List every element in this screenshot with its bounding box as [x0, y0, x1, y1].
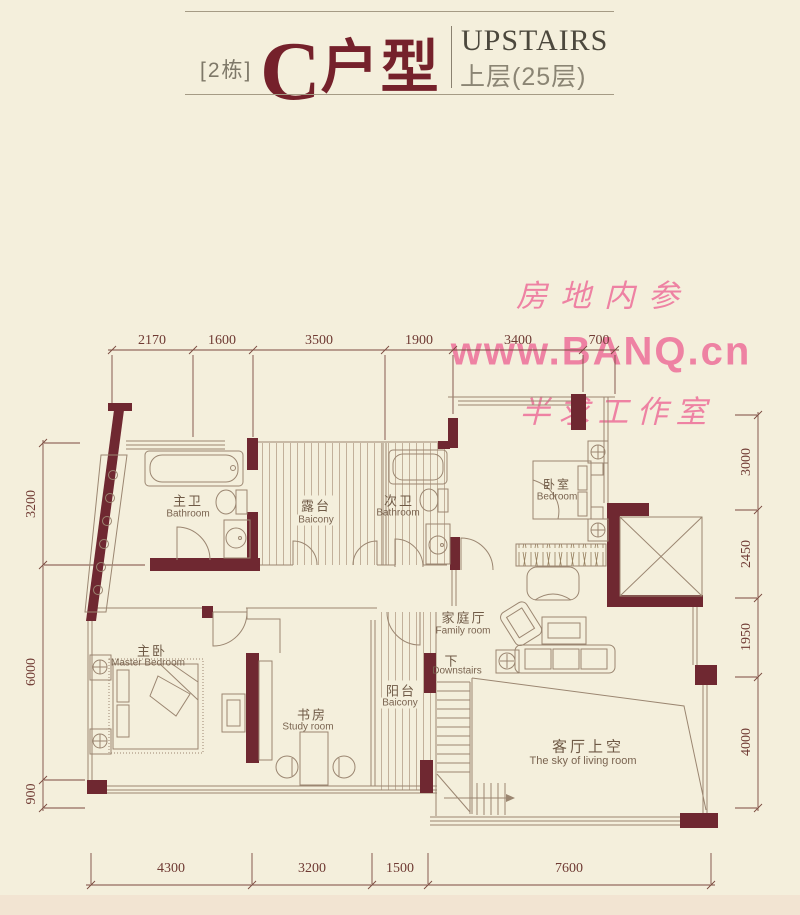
bedroom-door	[461, 538, 493, 570]
room-label-bedroom-zh: 卧室	[543, 476, 571, 493]
study-chair	[333, 756, 355, 778]
room-label-master-bath-zh: 主卫	[173, 491, 203, 510]
dim-bottom-1: 3200	[298, 861, 326, 877]
dim-right-1: 2450	[739, 540, 755, 568]
room-label-living-void-zh: 客厅上空	[552, 736, 624, 757]
room-label-living-void-en: The sky of living room	[530, 755, 637, 767]
elevator-shaft	[620, 517, 702, 596]
dim-left-1: 6000	[24, 658, 40, 686]
room-label-master-bedroom-en: Master Bedroom	[111, 658, 185, 669]
room-label-family-room-en: Family room	[435, 626, 490, 637]
study-chair	[276, 756, 298, 778]
floorplan-drawing	[0, 0, 800, 915]
room-label-second-bath-en: Bathroom	[376, 508, 419, 519]
master-bath-door	[177, 527, 210, 560]
dim-top-5: 700	[589, 333, 610, 349]
room-label-bedroom-en: Bedroom	[537, 492, 578, 503]
slanted-exterior-wall	[86, 410, 124, 621]
room-label-stairs-en: Downstairs	[432, 666, 481, 677]
tv-feature-wall	[246, 653, 259, 763]
dim-top-1: 1600	[208, 333, 236, 349]
dim-right-2: 1950	[739, 623, 755, 651]
floorplan-page: [2栋] C户型 UPSTAIRS 上层(25层) 房地内参 www.BANQ.…	[0, 0, 800, 915]
family-armchair	[498, 600, 544, 648]
room-label-master-bath-en: Bathroom	[166, 509, 209, 520]
master-bedroom-door	[213, 612, 247, 646]
dim-bottom-3: 7600	[555, 861, 583, 877]
stairs-direction-arrow	[506, 794, 515, 802]
master-bath-tub	[145, 451, 243, 486]
room-label-balcony-en: Baicony	[380, 698, 420, 709]
dim-bottom-0: 4300	[157, 861, 185, 877]
dim-right-3: 4000	[739, 728, 755, 756]
family-coffee-table	[542, 617, 586, 644]
room-label-terrace-zh: 露台	[299, 496, 333, 515]
room-label-family-room-zh: 家庭厅	[441, 608, 486, 627]
dim-bottom-2: 1500	[386, 861, 414, 877]
dim-top-4: 3400	[504, 333, 532, 349]
dim-left-2: 900	[24, 784, 40, 805]
room-label-study-en: Study room	[282, 722, 333, 733]
terrace-deck-hatch	[258, 443, 447, 565]
dim-top-3: 1900	[405, 333, 433, 349]
bedroom-wardrobe	[516, 544, 606, 566]
bedroom-armchair	[527, 567, 579, 600]
bottom-tint-strip	[0, 895, 800, 915]
study-desk	[300, 732, 328, 785]
master-bed	[113, 664, 198, 749]
study-bookshelf	[259, 661, 272, 760]
dim-top-0: 2170	[138, 333, 166, 349]
master-bed-rug	[109, 659, 203, 753]
master-bath-toilet	[236, 490, 247, 514]
dim-right-0: 3000	[739, 448, 755, 476]
dim-top-2: 3500	[305, 333, 333, 349]
dim-left-0: 3200	[24, 490, 40, 518]
room-label-terrace-en: Baicony	[296, 515, 336, 526]
